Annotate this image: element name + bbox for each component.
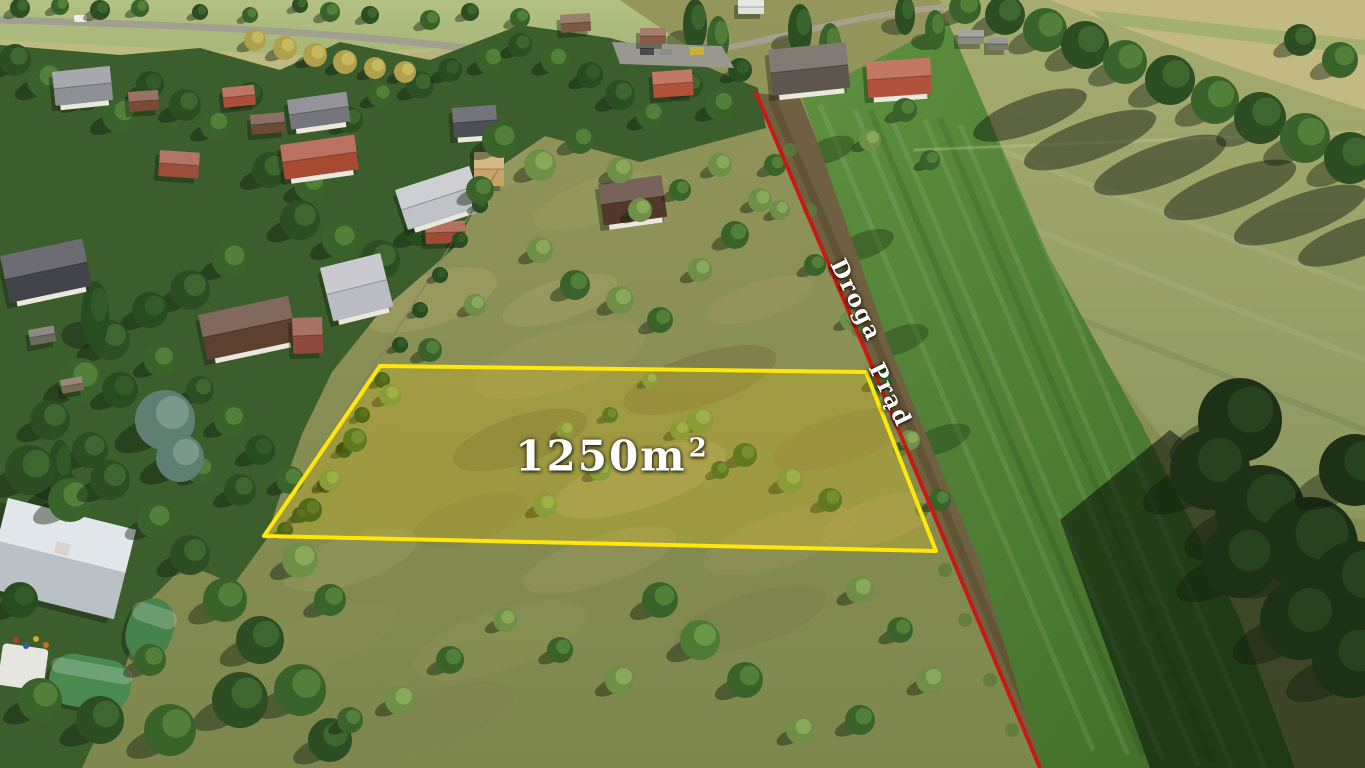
tree-crown: [211, 113, 228, 130]
tree-crown: [162, 709, 191, 738]
tree-crown: [156, 396, 189, 429]
tree-crown: [155, 347, 173, 365]
tree-crown: [740, 666, 760, 686]
tree-crown: [1208, 81, 1234, 107]
tree-crown: [741, 445, 754, 458]
plot-area-value: 1250m: [515, 432, 686, 481]
house: [124, 90, 160, 117]
ditch-scrub: [783, 143, 797, 157]
tree-crown: [146, 74, 161, 89]
tree-crown: [416, 74, 431, 89]
tree-crown: [856, 708, 873, 725]
car: [660, 49, 672, 55]
tree-crown: [1078, 26, 1104, 52]
tree-crown: [867, 131, 879, 143]
tree-crown: [1229, 530, 1271, 572]
ditch-scrub: [983, 673, 997, 687]
tree-crown: [656, 310, 670, 324]
tree-crown: [467, 5, 477, 15]
scene-painting: [0, 0, 1365, 768]
tree-crown: [796, 9, 810, 35]
tree-crown: [387, 386, 399, 398]
roof-highlight: [958, 30, 984, 37]
tree-crown: [346, 710, 360, 724]
tree-crown: [351, 430, 364, 443]
tree-crown: [327, 4, 338, 15]
tree-crown: [150, 506, 170, 526]
plot-area-label: 1250m2: [515, 432, 708, 481]
tree-crown: [446, 60, 459, 73]
tree-crown: [17, 0, 28, 11]
tree-crown: [616, 668, 633, 685]
tree-crown: [184, 274, 206, 296]
tree-crown: [218, 582, 242, 606]
car: [640, 48, 654, 55]
tree-crown: [173, 439, 199, 465]
tree-crown: [1288, 588, 1332, 632]
tree-crown: [535, 152, 553, 170]
tree-crown: [15, 586, 35, 606]
tree-crown: [427, 12, 438, 23]
tree-crown: [367, 8, 377, 18]
tree-crown: [495, 126, 515, 146]
tree-crown: [541, 495, 554, 508]
tree-crown: [1295, 27, 1313, 45]
tree-crown: [907, 432, 918, 443]
yard-item: [13, 637, 19, 643]
tree-crown: [472, 296, 484, 308]
tree-crown: [501, 610, 514, 623]
tree-crown: [516, 35, 529, 48]
tree-crown: [56, 446, 70, 476]
tree-crown: [616, 160, 630, 174]
roof-highlight: [988, 38, 1008, 44]
tree-crown: [426, 340, 439, 353]
tree-crown: [648, 374, 657, 383]
house: [954, 30, 984, 49]
tree-crown: [655, 586, 675, 606]
tree-crown: [517, 10, 528, 21]
tree-crown: [826, 490, 839, 503]
tree-crown: [372, 59, 384, 71]
tree-crown: [932, 14, 944, 34]
house: [246, 112, 286, 140]
tree-crown: [812, 256, 824, 268]
tree-crown: [927, 152, 938, 163]
tree-crown: [576, 129, 591, 144]
tree-crown: [341, 52, 354, 65]
tree-crown: [731, 224, 746, 239]
tree-crown: [335, 226, 355, 246]
tree-crown: [715, 21, 728, 45]
tree-crown: [446, 649, 461, 664]
house: [154, 150, 200, 184]
yard-item: [33, 636, 39, 642]
tree-crown: [198, 6, 207, 15]
house: [648, 69, 694, 103]
tree-crown: [586, 65, 600, 79]
ditch-scrub: [938, 563, 952, 577]
tree-crown: [292, 669, 321, 698]
tree-crown: [145, 296, 165, 316]
tree-crown: [256, 438, 273, 455]
driveway: [612, 42, 734, 68]
ditch-scrub: [958, 613, 972, 627]
roof-highlight: [292, 317, 323, 336]
tree-crown: [777, 202, 788, 213]
tree-crown: [1163, 60, 1191, 88]
yard-item: [23, 643, 29, 649]
tree-crown: [616, 289, 631, 304]
tree-crown: [294, 204, 316, 226]
tree-crown: [694, 624, 716, 646]
tree-crown: [937, 491, 949, 503]
house: [218, 85, 256, 114]
tree-crown: [418, 304, 427, 313]
tree-crown: [281, 38, 294, 51]
tree-crown: [33, 682, 57, 706]
tree-crown: [646, 104, 661, 119]
tree-crown: [691, 4, 705, 30]
tree-crown: [10, 47, 28, 65]
tree-crown: [926, 669, 941, 684]
aerial-plot-photo: 1250m2 Droga Prąd: [0, 0, 1365, 768]
tree-crown: [398, 339, 407, 348]
tree-crown: [486, 49, 501, 64]
tree-crown: [1298, 118, 1326, 146]
tree-crown: [253, 621, 279, 647]
tree-crown: [636, 200, 649, 213]
tree-crown: [145, 647, 163, 665]
ditch-scrub: [1005, 723, 1019, 737]
tree-crown: [786, 470, 800, 484]
tree-crown: [901, 100, 914, 113]
tree-crown: [556, 640, 570, 654]
tree-crown: [736, 60, 749, 73]
roof-highlight: [738, 0, 764, 7]
tree-crown: [196, 379, 211, 394]
tree-crown: [325, 587, 343, 605]
roof-highlight: [640, 28, 666, 36]
yard-item: [43, 642, 49, 648]
tree-crown: [85, 436, 105, 456]
tree-crown: [536, 240, 550, 254]
tree-crown: [248, 9, 257, 18]
truck: [690, 47, 704, 55]
tree-crown: [1227, 386, 1273, 432]
tree-crown: [311, 45, 324, 58]
tree-crown: [327, 471, 339, 483]
tree-crown: [93, 701, 119, 727]
tree-crown: [616, 83, 633, 100]
plot-area-superscript: 2: [689, 434, 709, 464]
tree-crown: [476, 179, 491, 194]
tree-crown: [376, 85, 389, 98]
house: [734, 0, 764, 19]
tree-crown: [91, 288, 108, 322]
tree-crown: [716, 155, 729, 168]
tree-crown: [252, 31, 264, 43]
tree-crown: [756, 190, 769, 203]
tree-crown: [225, 407, 243, 425]
tree-crown: [696, 410, 710, 424]
tree-crown: [283, 524, 292, 533]
tree-crown: [97, 2, 108, 13]
tree-crown: [1335, 46, 1355, 66]
tree-crown: [306, 500, 319, 513]
tree-crown: [137, 1, 147, 11]
tree-crown: [1038, 12, 1062, 36]
house: [48, 66, 114, 111]
tree-crown: [235, 477, 253, 495]
tree-crown: [104, 464, 126, 486]
house: [764, 42, 851, 101]
tree-crown: [551, 49, 566, 64]
tree-crown: [796, 719, 811, 734]
tree-crown: [298, 509, 307, 518]
house: [556, 13, 592, 38]
tree-crown: [458, 234, 467, 243]
tree-crown: [438, 269, 447, 278]
tree-crown: [716, 93, 733, 110]
house: [862, 58, 933, 104]
tree-crown: [180, 92, 198, 110]
tree-crown: [677, 181, 689, 193]
house: [636, 28, 666, 49]
tree-crown: [44, 404, 66, 426]
house: [288, 317, 323, 359]
tree-crown: [184, 539, 206, 561]
tree-crown: [115, 376, 135, 396]
tree-crown: [23, 450, 51, 478]
tree-crown: [225, 246, 245, 266]
tree-crown: [380, 374, 389, 383]
tree-crown: [1118, 44, 1142, 68]
tree-crown: [571, 273, 588, 290]
tree-crown: [772, 156, 784, 168]
tree-crown: [396, 688, 413, 705]
tree-crown: [696, 260, 709, 273]
tree-crown: [717, 463, 727, 473]
tree-crown: [896, 620, 910, 634]
ditch-scrub: [803, 203, 817, 217]
tree-crown: [360, 409, 369, 418]
tree-crown: [402, 63, 414, 75]
tree-crown: [295, 546, 315, 566]
tree-crown: [1252, 97, 1281, 126]
tree-crown: [232, 678, 263, 709]
tree-crown: [856, 579, 871, 594]
tree-crown: [286, 469, 301, 484]
tree-crown: [608, 409, 617, 418]
tree-crown: [999, 0, 1021, 21]
